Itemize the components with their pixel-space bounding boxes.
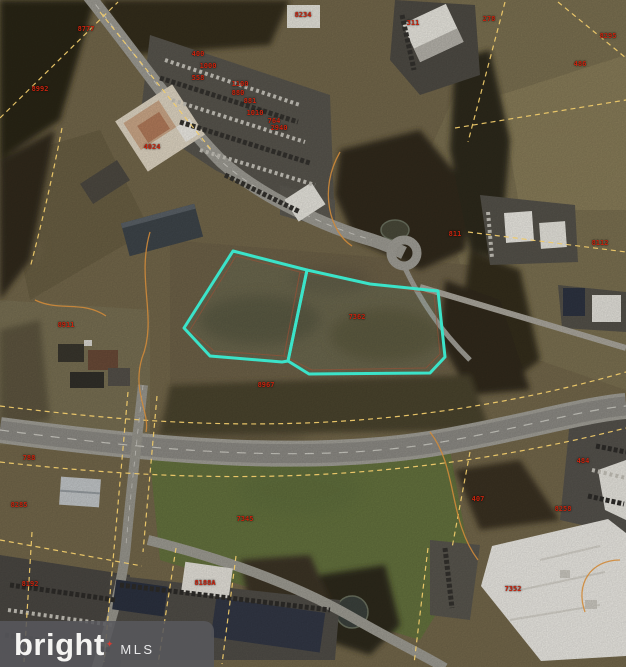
aerial-parcel-map: 8777899282342783118295486400100055811008… — [0, 0, 626, 667]
brightmls-mls-text: MLS — [120, 632, 154, 657]
brightmls-brand-text: bright — [14, 629, 105, 660]
brightmls-spark-icon: ✦ — [106, 639, 114, 650]
brightmls-watermark: bright✦ MLS — [0, 621, 214, 667]
aerial-photo — [0, 0, 626, 667]
